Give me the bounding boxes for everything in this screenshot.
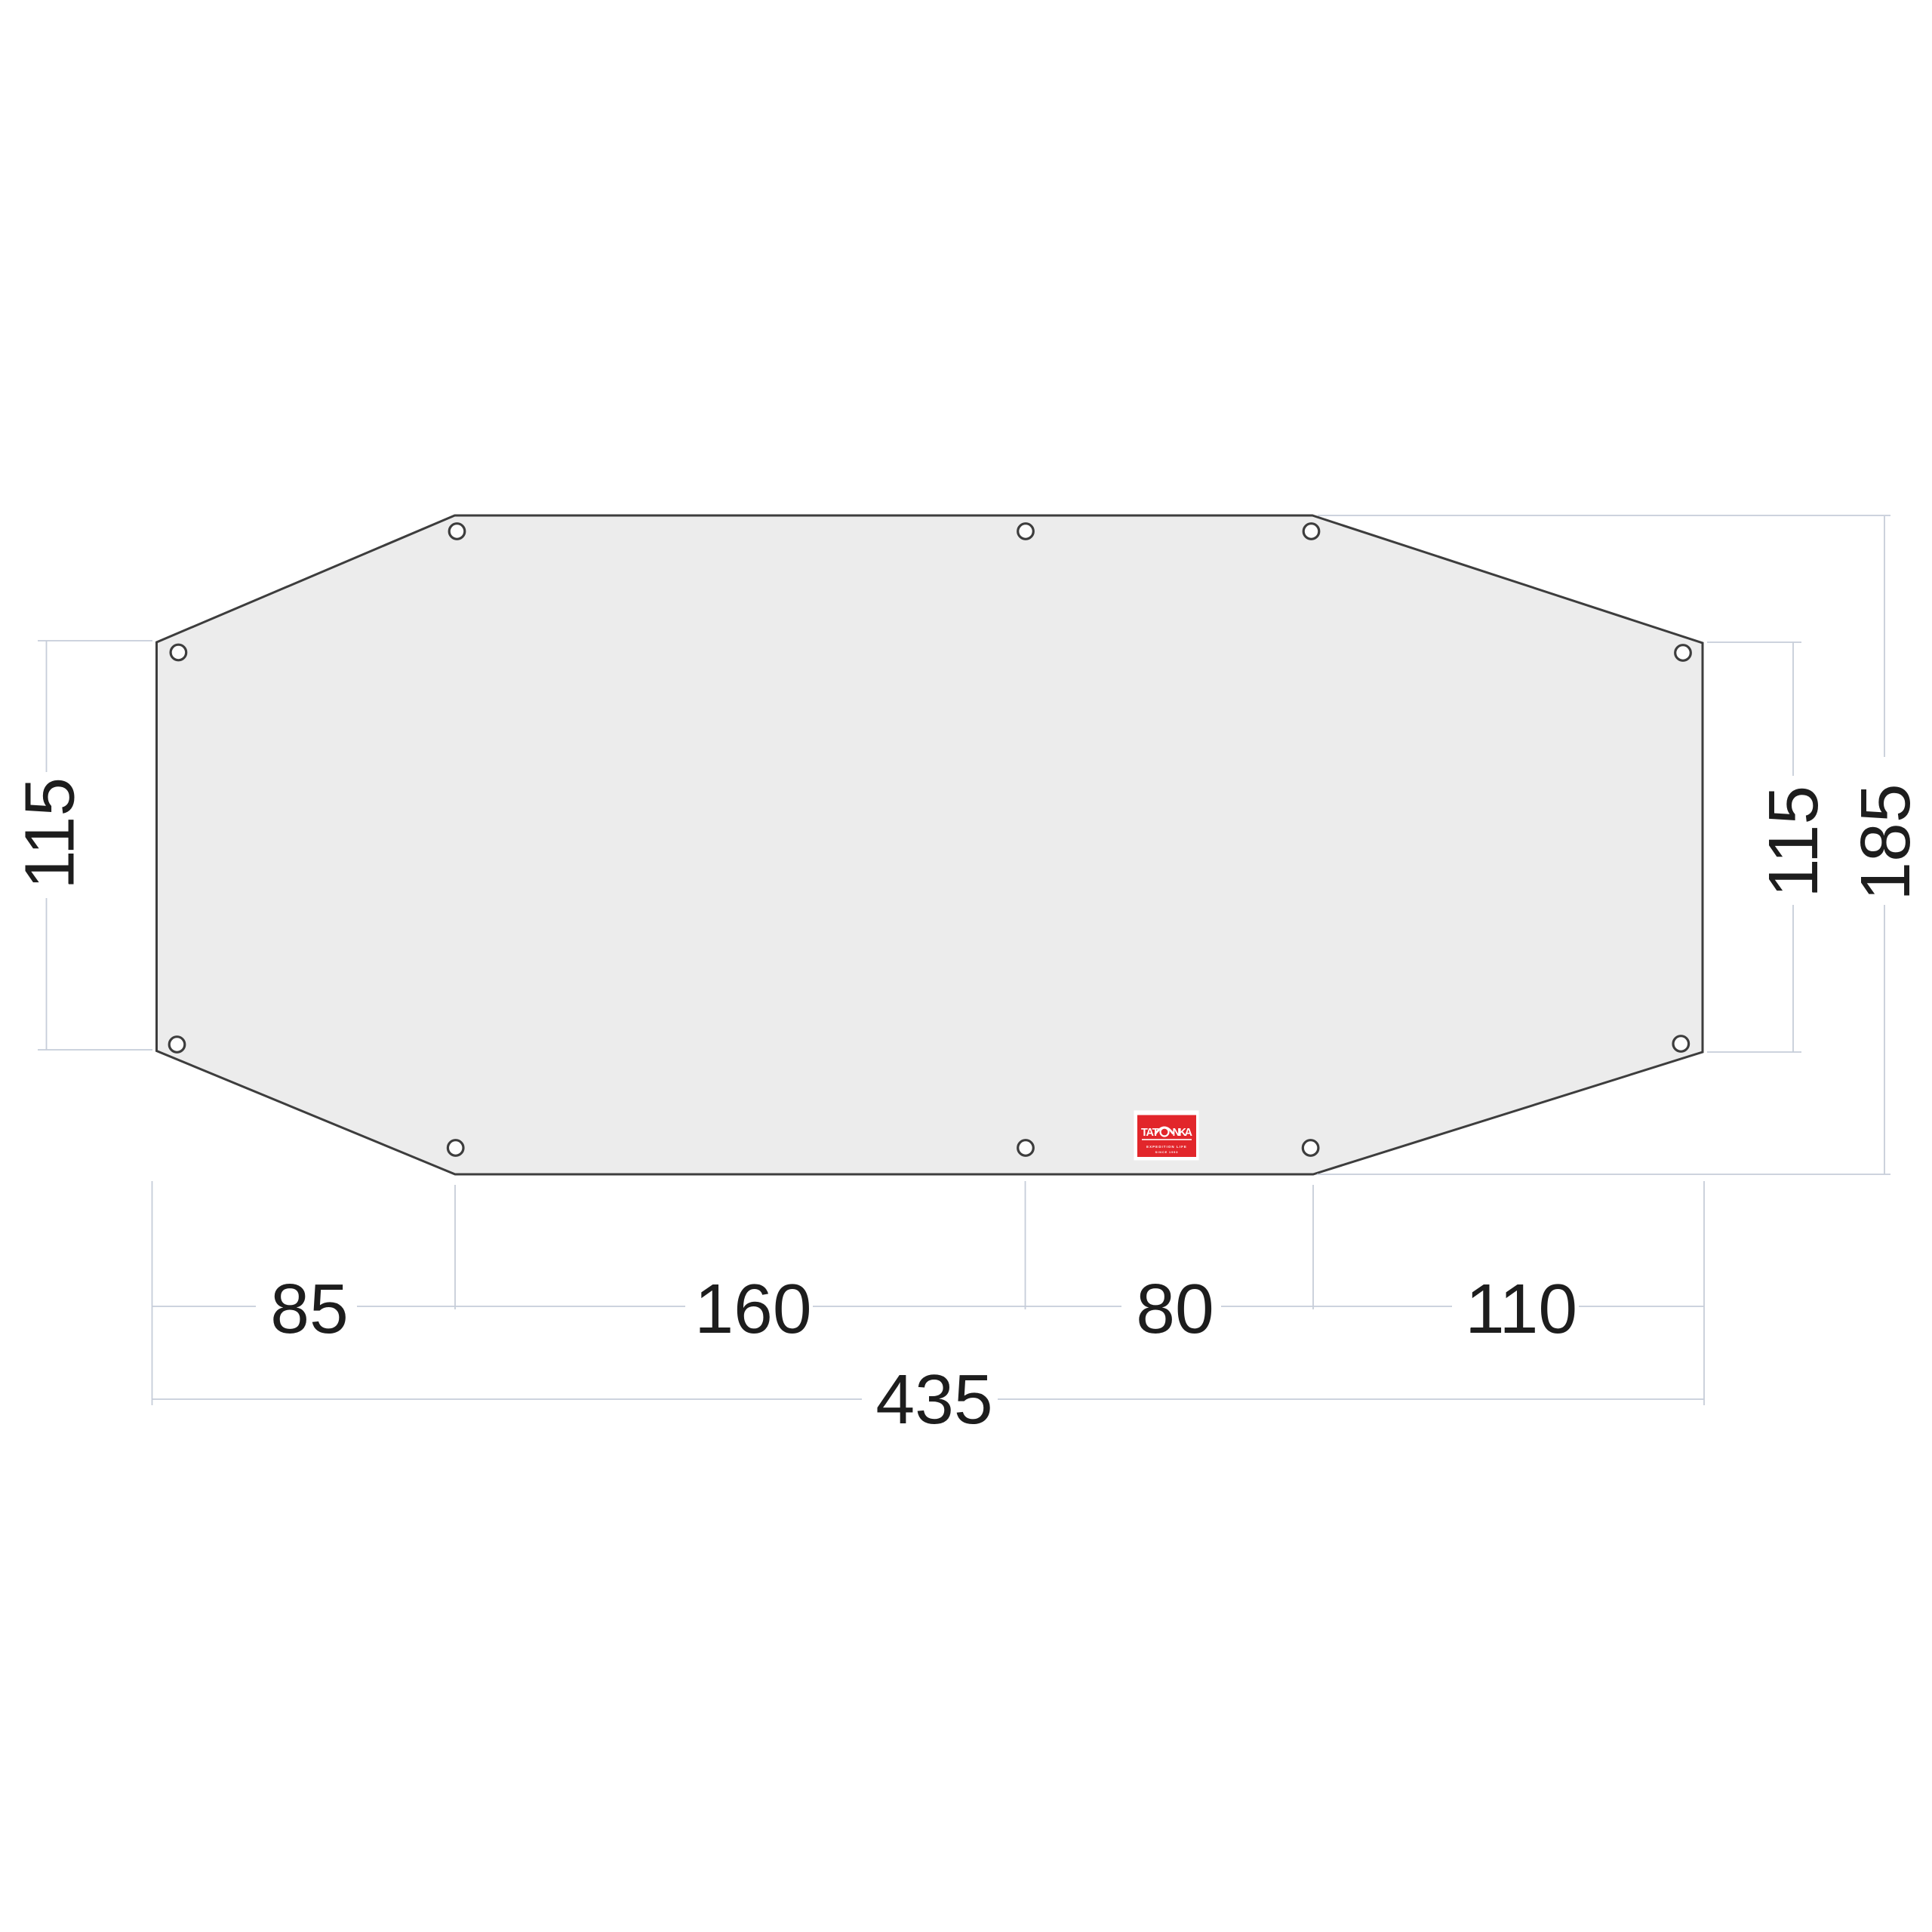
svg-text:110: 110 [1466, 1269, 1577, 1348]
svg-text:85: 85 [270, 1269, 348, 1348]
svg-text:115: 115 [11, 777, 89, 889]
svg-text:80: 80 [1136, 1269, 1214, 1348]
svg-text:TAT: TAT [1141, 1127, 1159, 1139]
svg-text:NKA: NKA [1173, 1127, 1193, 1139]
svg-text:435: 435 [875, 1360, 992, 1438]
svg-text:SINCE 1993: SINCE 1993 [1155, 1150, 1179, 1154]
svg-text:EXPEDITION LIFE: EXPEDITION LIFE [1146, 1145, 1187, 1149]
svg-text:115: 115 [1754, 786, 1832, 897]
svg-text:185: 185 [1846, 783, 1924, 900]
svg-text:160: 160 [694, 1269, 811, 1348]
